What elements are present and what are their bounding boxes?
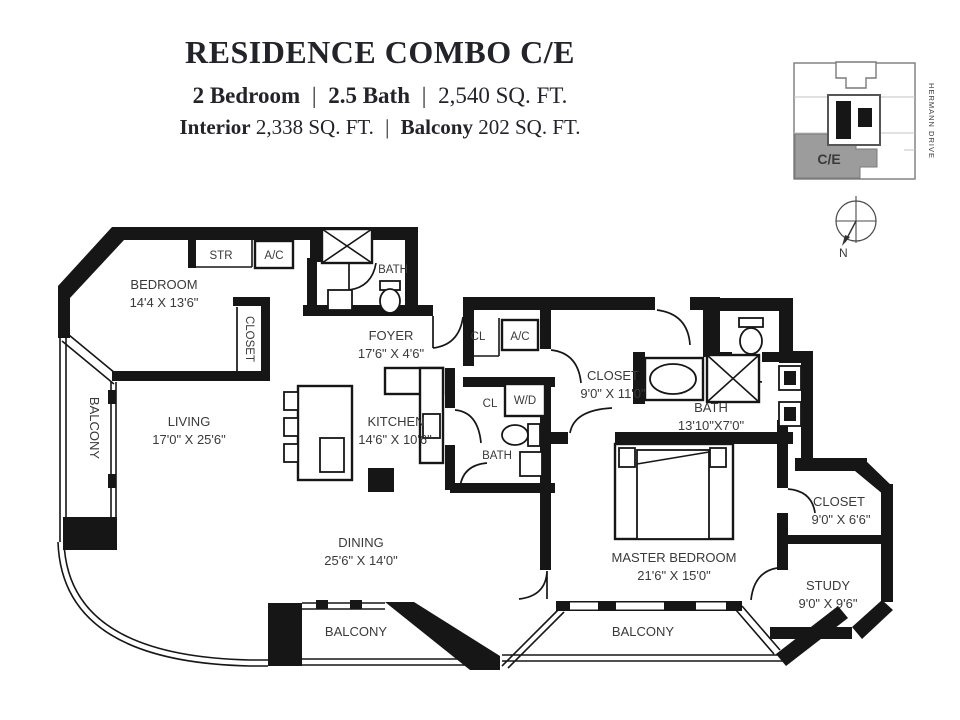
room-label-dining: DINING (338, 535, 384, 550)
room-label-bath2: BATH (482, 450, 512, 462)
room-dims-master-bedroom: 21'6" X 15'0" (637, 568, 711, 583)
toilet-fixture (739, 318, 763, 354)
walls (58, 227, 893, 670)
door-arc (455, 410, 481, 443)
floorplan-canvas: C/E HERMANN DRIVE N (0, 0, 960, 720)
toilet-fixture (380, 281, 400, 313)
room-label-master-bedroom: MASTER BEDROOM (612, 550, 737, 565)
room-label-balcony-left: BALCONY (87, 397, 102, 459)
room-label-ac1: A/C (264, 250, 283, 262)
keyplan-core (828, 95, 880, 145)
room-label-balcony-bottom-left: BALCONY (325, 624, 387, 639)
sink-fixture (328, 290, 352, 310)
bar-stool (284, 444, 298, 462)
room-dims-dining: 25'6" X 14'0" (324, 553, 398, 568)
door-arc (349, 262, 376, 290)
room-dims-bedroom: 14'4 X 13'6" (130, 295, 199, 310)
bathtub-fixture (645, 358, 703, 400)
door-arc (570, 408, 612, 433)
door-arc (657, 310, 690, 345)
room-label-cl1: CL (471, 331, 486, 343)
door-arc (751, 568, 777, 600)
pillow (710, 448, 726, 467)
room-label-foyer: FOYER (369, 328, 414, 343)
bed-fixture (615, 444, 733, 539)
balcony-door-arc (519, 571, 547, 599)
bar-stool (284, 392, 298, 410)
keyplan-core-square (858, 108, 872, 127)
room-label-kitchen: KITCHEN (367, 414, 424, 429)
pillow (619, 448, 635, 467)
compass: N (836, 196, 876, 260)
kitchen-island (284, 386, 352, 480)
street-label: HERMANN DRIVE (927, 83, 936, 159)
sink-fixture (520, 452, 542, 476)
room-label-str: STR (210, 250, 233, 262)
bar-stool (284, 418, 298, 436)
room-dims-walkin-closet: 9'0" X 11'0" (580, 386, 646, 401)
window (616, 603, 664, 610)
room-label-cl2: CL (483, 398, 498, 410)
door-arc (551, 350, 581, 383)
room-label-walkin-closet: CLOSET (587, 368, 639, 383)
window (570, 603, 598, 610)
keyplan-core-bar (836, 101, 851, 139)
room-label-ac2: A/C (510, 331, 529, 343)
room-label-master-closet: CLOSET (813, 494, 865, 509)
room-dims-master-bath: 13'10"X7'0" (678, 418, 745, 433)
shower-fixture (707, 355, 759, 402)
keyplan-unit-label: C/E (817, 151, 840, 167)
compass-north-label: N (839, 246, 848, 260)
room-dims-study: 9'0" X 9'6" (798, 596, 857, 611)
room-dims-living: 17'0" X 25'6" (152, 432, 226, 447)
room-dims-kitchen: 14'6" X 10'6" (358, 432, 432, 447)
room-dims-master-closet: 9'0" X 6'6" (811, 512, 870, 527)
room-label-bedroom: BEDROOM (130, 277, 197, 292)
window (696, 603, 726, 610)
wall-niche (779, 366, 801, 426)
shower-fixture (322, 229, 372, 263)
master-windows (570, 603, 726, 610)
room-label-master-bath: BATH (694, 400, 728, 415)
room-label-living: LIVING (168, 414, 211, 429)
room-label-study: STUDY (806, 578, 850, 593)
room-dims-foyer: 17'6" X 4'6" (358, 346, 425, 361)
room-label-balcony-bottom-right: BALCONY (612, 624, 674, 639)
keyplan: C/E HERMANN DRIVE N (794, 62, 936, 260)
room-label-wd: W/D (514, 395, 536, 407)
toilet-fixture (502, 424, 540, 446)
entry-door-arc (433, 316, 463, 348)
door-arc (788, 489, 815, 513)
room-label-bedroom-closet: CLOSET (243, 316, 255, 362)
room-label-bath1: BATH (378, 264, 408, 276)
